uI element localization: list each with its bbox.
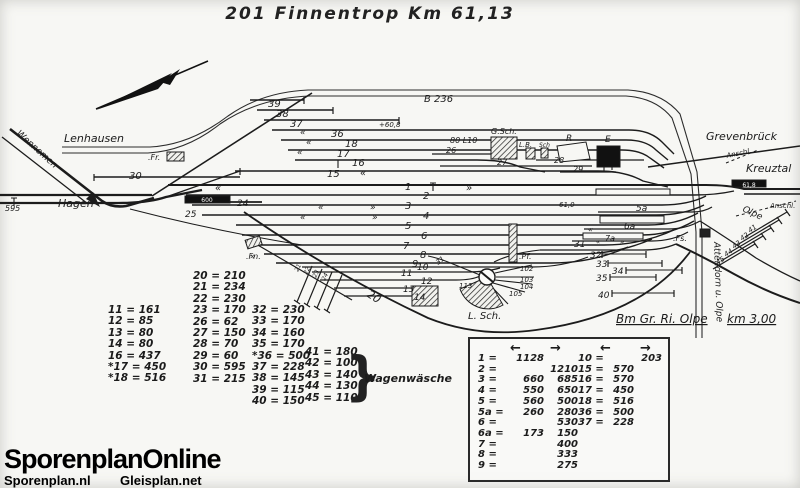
track-35: 35	[596, 274, 608, 284]
gueterschuppen-building	[491, 137, 517, 159]
track-id: 37 =	[578, 418, 608, 429]
track-21: 21	[293, 263, 303, 273]
length-entry: 35 = 170	[252, 339, 310, 350]
track-31-diagonal: 31	[434, 255, 446, 267]
track-15: 15	[327, 169, 340, 180]
length-entry: 31 = 215	[193, 374, 246, 385]
lenhausen-label: Lenhausen	[64, 132, 124, 145]
length-east: 203	[634, 354, 662, 365]
length-east	[634, 386, 662, 397]
track-6: 6	[421, 231, 427, 242]
length-east	[634, 418, 662, 429]
direction-chevron: »	[250, 252, 256, 262]
direction-chevron: «	[300, 128, 306, 138]
track-7: 7	[403, 241, 410, 252]
gueterschuppen-label: G.Sch.	[491, 127, 517, 136]
table-row: 5 = 560 500	[478, 397, 578, 408]
track-5a: 5a	[636, 204, 647, 214]
direction-chevron: »	[620, 238, 624, 246]
track-29: 29	[573, 165, 583, 174]
diagram-labels: LenhausenWennemenHagenGrevenbrückKreuzta…	[5, 94, 795, 326]
b236-label: B 236	[424, 94, 453, 105]
wagenwaesche-note: Wagenwäsche	[364, 372, 452, 385]
track-17: 17	[337, 149, 350, 160]
track-26: 26	[446, 146, 456, 155]
track-12: 12	[421, 277, 433, 287]
length-west: 560	[510, 397, 544, 408]
stellwerk-fs-label: .Fs.	[673, 234, 687, 243]
table-row: 18 = 516	[578, 397, 662, 408]
track-36: 36	[331, 129, 344, 140]
sporenplan-logo: SporenplanOnline	[4, 444, 221, 475]
usable-length-table: ← → ← → 1 = 1128 2 = 1210 3 = 660 685 4 …	[468, 337, 670, 482]
direction-chevron: «	[300, 213, 306, 223]
track-27: 27	[497, 158, 508, 167]
table-row: 37 = 228	[578, 418, 662, 429]
direction-chevron: »	[370, 203, 376, 213]
sch-building	[541, 148, 548, 158]
direction-chevron: «	[588, 225, 593, 234]
sporenplan-nl-label: Sporenplan.nl	[4, 473, 91, 488]
track-33: 33	[596, 260, 608, 270]
track-id: 18 =	[578, 397, 608, 408]
table-row: 9 = 275	[478, 461, 578, 472]
length-east: 500	[544, 397, 578, 408]
platform-600-marker: 600	[201, 197, 213, 204]
track-5: 5	[405, 221, 411, 232]
track-34: 34	[612, 267, 624, 277]
length-east	[634, 408, 662, 419]
track-11: 11	[401, 269, 412, 279]
lb-building-label: L.B.	[519, 141, 532, 149]
length-west: 260	[510, 408, 544, 419]
track-28: 28	[554, 156, 564, 165]
km-61-8-marker: 61,8	[742, 182, 756, 189]
direction-chevron: «	[306, 138, 312, 148]
track-plan-svg: LenhausenWennemenHagenGrevenbrückKreuzta…	[0, 0, 800, 488]
track-8: 8	[420, 250, 426, 261]
length-table-col1: 11 = 16112 = 8513 = 8014 = 8016 = 437*17…	[108, 305, 166, 385]
km-61-0-marker: 61,0	[559, 201, 575, 209]
length-west	[510, 461, 544, 472]
attendorn-olpe-label: Attendorn u. Olpe	[711, 241, 724, 323]
direction-chevron: «	[297, 148, 303, 158]
length-table-col2: 20 = 21021 = 23422 = 23023 = 17026 = 622…	[193, 271, 246, 385]
track-30: 30	[129, 171, 142, 182]
lb-building	[526, 148, 535, 159]
track-3: 3	[405, 201, 411, 212]
length-east	[634, 397, 662, 408]
track-14: 14	[414, 293, 426, 303]
length-west: 173	[510, 429, 544, 440]
length-west: 1128	[510, 354, 544, 365]
platform-1	[596, 189, 670, 195]
empfangsgebaeude-label: E	[605, 135, 611, 145]
length-east	[634, 365, 662, 376]
track-31: 31	[574, 240, 585, 250]
length-west: 228	[608, 418, 634, 429]
km-3-00-label: km 3,00	[727, 312, 777, 326]
track-20: 20	[364, 288, 383, 307]
anschl-right-label: Anschl.	[769, 202, 795, 210]
km-80-l10-marker: 80 L10	[450, 136, 477, 145]
gleisplan-scan: 201 Finnentrop Km 61,13	[0, 0, 800, 488]
hagen-label: Hagen	[58, 197, 94, 210]
track-6a: 6a	[624, 222, 635, 232]
sch-building-label: Sch	[539, 142, 550, 149]
track-23: 23	[311, 269, 321, 279]
track-38: 38	[276, 109, 289, 120]
grevenbrueck-label: Grevenbrück	[706, 130, 778, 143]
track-7a: 7a	[605, 234, 615, 243]
track-id: 9 =	[478, 461, 510, 472]
length-entry: *18 = 516	[108, 373, 166, 384]
track-102: 102	[520, 265, 534, 273]
stellwerk-fr-building	[167, 152, 184, 161]
turntable-113: 113	[459, 282, 472, 290]
yard-tracks-upper	[94, 100, 674, 187]
olpe-branch	[676, 221, 800, 303]
km-595-marker: 595	[5, 204, 20, 213]
direction-chevron: »	[466, 183, 472, 194]
track-24: 24	[237, 199, 249, 209]
r-building-label: R	[566, 134, 572, 144]
length-east: 275	[544, 461, 578, 472]
empfangsgebaeude-building	[597, 146, 620, 167]
stellwerk-pf-building	[509, 224, 517, 262]
track-1: 1	[405, 182, 411, 193]
length-entry: 30 = 595	[193, 362, 246, 373]
direction-chevron: «	[215, 183, 221, 194]
direction-chevron: «	[360, 168, 366, 179]
track-id: 5 =	[478, 397, 510, 408]
kreuztal-label: Kreuztal	[746, 162, 791, 175]
track-40: 40	[598, 291, 610, 301]
track-25: 25	[185, 210, 197, 220]
stellwerk-fr-label: .Fr.	[148, 153, 160, 162]
length-entry: 14 = 80	[108, 339, 166, 350]
stellwerk-fs-building	[700, 229, 710, 237]
direction-chevron: «	[596, 238, 600, 246]
stellwerk-pf-label: .Pf.	[519, 252, 532, 261]
track-105: 105	[509, 290, 523, 298]
bm-gr-ri-olpe-label: Bm Gr. Ri. Olpe	[616, 312, 708, 326]
box-table-group1: 1 = 1128 2 = 1210 3 = 660 685 4 = 550 65…	[478, 354, 578, 472]
lokschuppen-label: L. Sch.	[468, 311, 501, 322]
track-13: 13	[403, 285, 415, 295]
track-2: 2	[423, 191, 429, 202]
length-table-col3: 32 = 23033 = 17034 = 16035 = 170*36 = 50…	[252, 305, 310, 408]
length-west: 516	[608, 397, 634, 408]
olpe-label: Olpe	[741, 205, 765, 223]
gleisplan-net-label: Gleisplan.net	[120, 473, 202, 488]
length-west	[510, 450, 544, 461]
length-east	[634, 375, 662, 386]
track-10: 10	[417, 263, 429, 273]
length-entry: 23 = 170	[193, 305, 246, 316]
direction-chevron: «	[318, 203, 324, 213]
direction-chevron: »	[372, 213, 378, 223]
length-west	[510, 440, 544, 451]
km-60-8-marker: +60,8	[379, 121, 401, 129]
length-entry: 40 = 150	[252, 396, 310, 407]
track-4: 4	[423, 211, 429, 222]
box-table-group2: 10 = 203 15 = 570 16 = 570 17 = 450 18 =	[578, 354, 662, 429]
north-arrow-icon	[96, 61, 208, 110]
stellwerk-fn-building	[245, 236, 262, 249]
